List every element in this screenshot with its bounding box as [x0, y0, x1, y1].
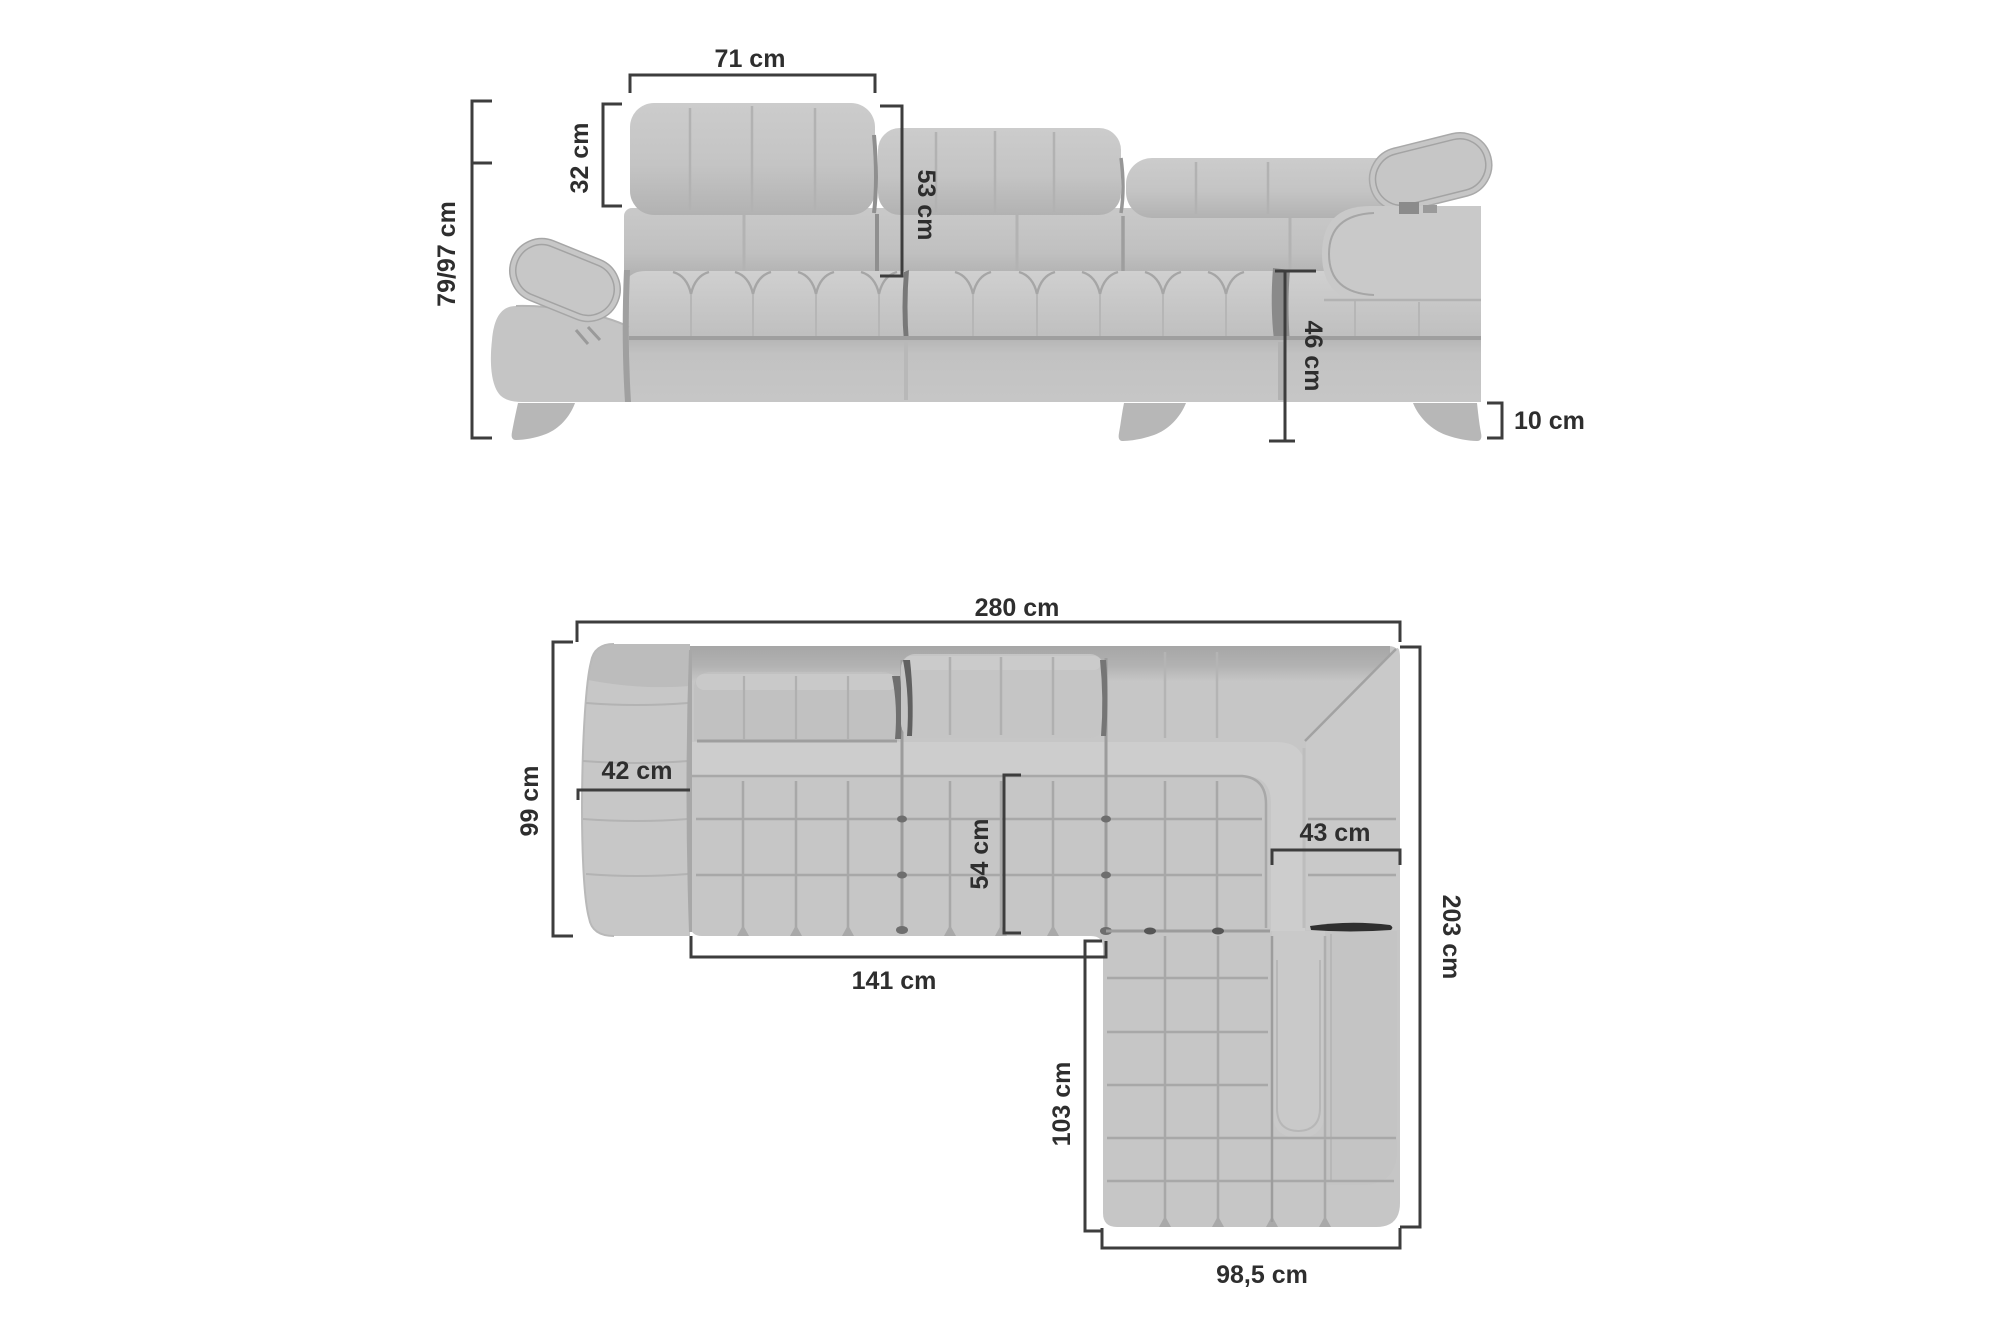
svg-text:53 cm: 53 cm	[912, 170, 940, 241]
svg-text:32 cm: 32 cm	[566, 123, 594, 194]
svg-text:141 cm: 141 cm	[852, 967, 937, 995]
svg-text:203 cm: 203 cm	[1437, 895, 1465, 980]
svg-text:42 cm: 42 cm	[602, 757, 673, 785]
svg-text:54 cm: 54 cm	[966, 819, 994, 890]
svg-text:10 cm: 10 cm	[1514, 407, 1585, 435]
svg-text:280 cm: 280 cm	[975, 594, 1060, 622]
svg-text:71 cm: 71 cm	[715, 45, 786, 73]
svg-text:79/97 cm: 79/97 cm	[433, 201, 461, 307]
svg-text:43 cm: 43 cm	[1300, 819, 1371, 847]
svg-text:46 cm: 46 cm	[1299, 321, 1327, 392]
svg-text:99 cm: 99 cm	[516, 766, 544, 837]
svg-text:98,5 cm: 98,5 cm	[1216, 1261, 1308, 1289]
svg-text:103 cm: 103 cm	[1048, 1062, 1076, 1147]
